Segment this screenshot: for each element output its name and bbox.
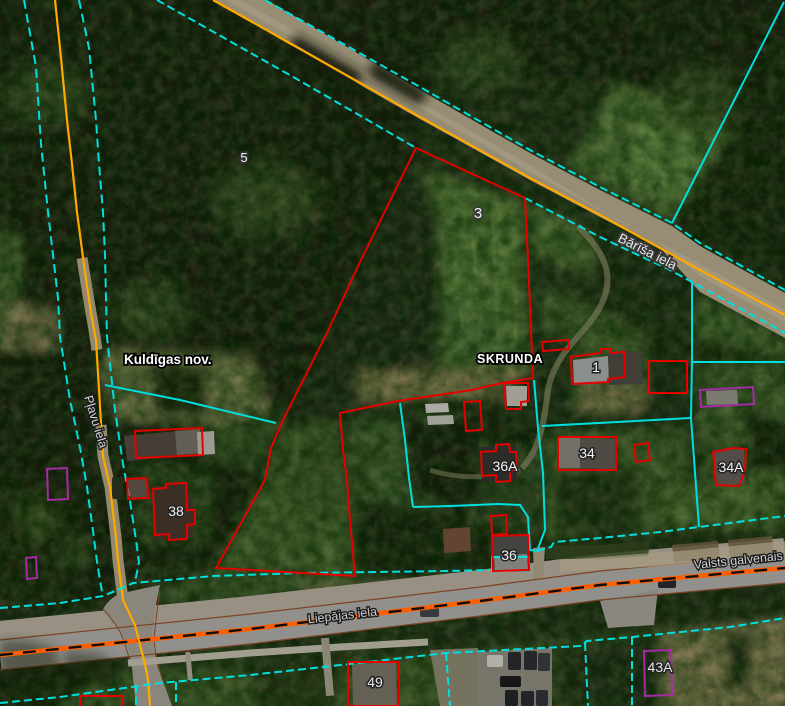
svg-text:43A: 43A <box>648 659 674 675</box>
svg-text:34A: 34A <box>719 459 745 475</box>
svg-text:1: 1 <box>592 359 600 375</box>
svg-text:5: 5 <box>240 150 247 165</box>
svg-text:49: 49 <box>367 674 383 690</box>
svg-text:SKRUNDA: SKRUNDA <box>477 352 543 366</box>
svg-text:36A: 36A <box>493 458 519 474</box>
svg-text:Kuldīgas nov.: Kuldīgas nov. <box>124 352 212 367</box>
svg-text:36: 36 <box>501 547 517 563</box>
svg-text:34: 34 <box>579 445 595 461</box>
svg-text:38: 38 <box>168 503 184 519</box>
svg-text:3: 3 <box>474 205 482 222</box>
